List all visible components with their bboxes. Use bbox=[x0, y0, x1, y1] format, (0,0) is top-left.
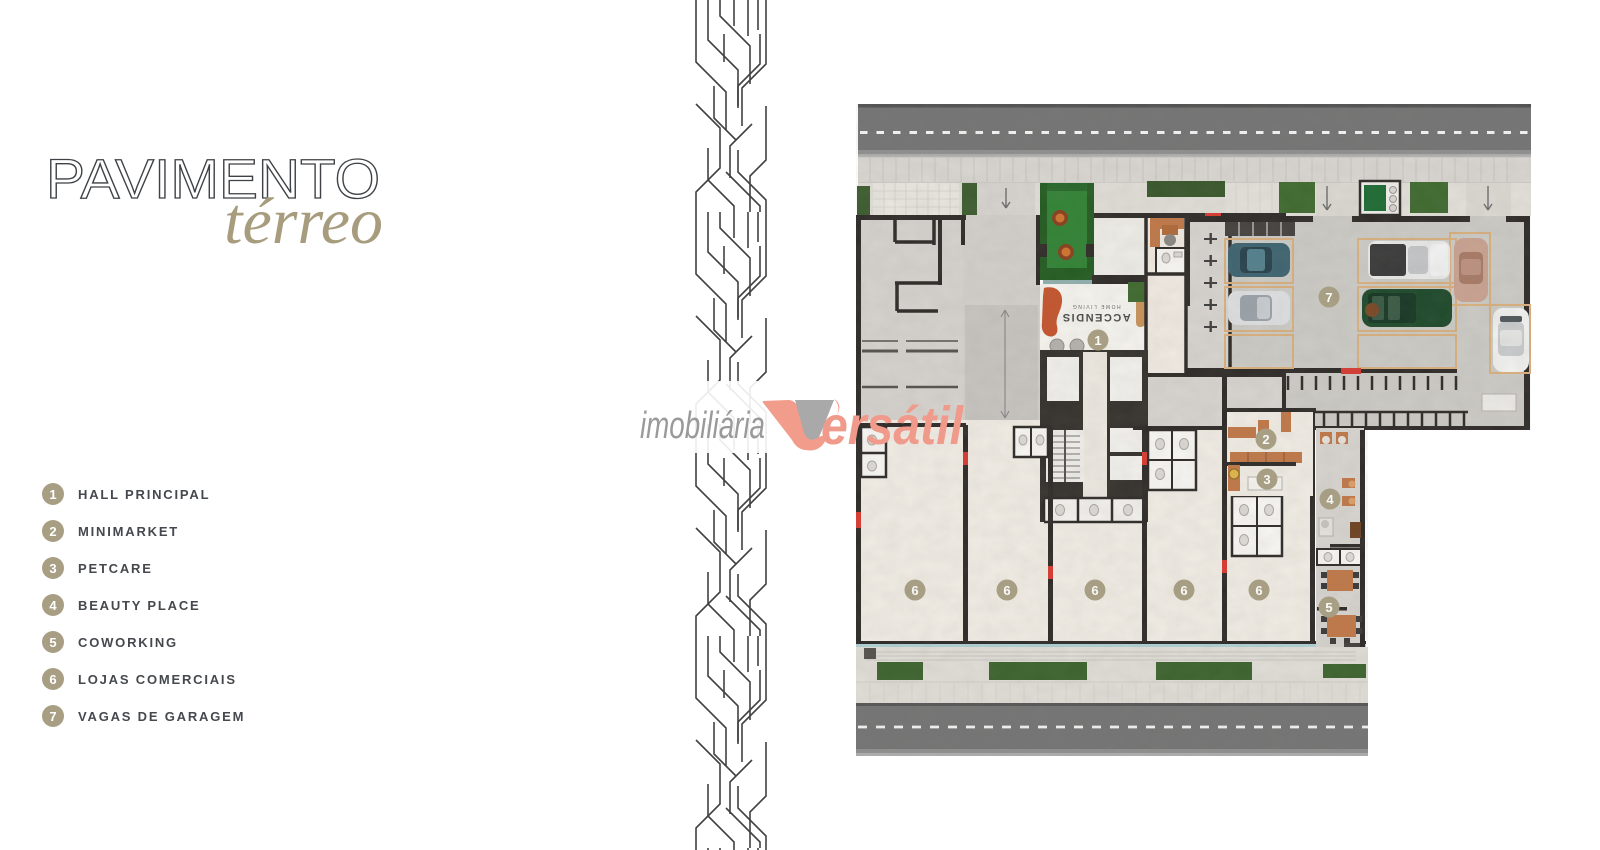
svg-text:5: 5 bbox=[49, 635, 56, 650]
svg-text:6: 6 bbox=[49, 672, 56, 687]
svg-text:4: 4 bbox=[49, 598, 57, 613]
svg-text:ersátil: ersátil bbox=[821, 396, 964, 456]
svg-text:imobiliária: imobiliária bbox=[640, 405, 765, 447]
svg-text:térreo: térreo bbox=[224, 185, 383, 258]
svg-text:BEAUTY PLACE: BEAUTY PLACE bbox=[78, 598, 200, 613]
svg-text:VAGAS DE GARAGEM: VAGAS DE GARAGEM bbox=[78, 709, 245, 724]
svg-text:7: 7 bbox=[49, 709, 56, 724]
svg-text:HALL PRINCIPAL: HALL PRINCIPAL bbox=[78, 487, 210, 502]
svg-text:MINIMARKET: MINIMARKET bbox=[78, 524, 179, 539]
svg-text:1: 1 bbox=[49, 487, 56, 502]
svg-text:3: 3 bbox=[49, 561, 56, 576]
svg-text:PETCARE: PETCARE bbox=[78, 561, 153, 576]
svg-text:COWORKING: COWORKING bbox=[78, 635, 178, 650]
svg-text:2: 2 bbox=[49, 524, 56, 539]
svg-text:LOJAS COMERCIAIS: LOJAS COMERCIAIS bbox=[78, 672, 237, 687]
